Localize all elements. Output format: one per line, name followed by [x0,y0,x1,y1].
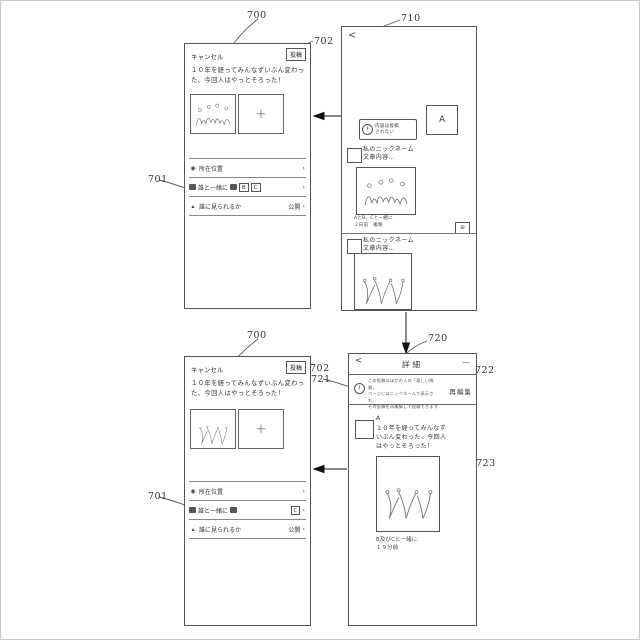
row-with-label: 誰と一緒に [198,183,228,192]
attached-photo[interactable] [190,94,236,134]
post-body-text[interactable]: １０年を経ってみんなずいぶん変わった、今回人はやっとそろった！ [191,66,307,86]
item1-caption: AとB、Cと一緒に ２日前 複製 [354,216,393,230]
notice-divider [349,404,476,405]
ref-721: 721 [311,374,331,385]
patent-figure: 700 702 710 711 701 700 702 701 720 721 … [0,0,640,640]
ref-700-bottom: 700 [247,330,267,341]
attached-photo[interactable] [190,409,236,449]
tag-people-icon [189,184,196,190]
compose-options: ◉ 所在位置 › 誰と一緒に B C › ▴ 誰に見られるか 公開 › [189,158,306,216]
row-location[interactable]: ◉ 所在位置 › [189,158,306,177]
chevron-right-icon: › [302,164,305,172]
item2-photo[interactable] [354,253,412,310]
detail-body-text: １０年を経ってみんなずいぶん変わった、今回人はやっとそろった！ [376,424,452,451]
row-with-whom[interactable]: 誰と一緒に C › [189,500,306,519]
not-posted-notice: ! 内容は投稿 されない [359,119,417,140]
row-with-label: 誰と一緒に [198,506,228,515]
chevron-right-icon: › [302,506,305,514]
row-visibility-label: 誰に見られるか [199,202,241,211]
cancel-button[interactable]: キャンセル [191,364,224,374]
hands-sketch-icon [358,257,408,307]
row-location[interactable]: ◉ 所在位置 › [189,481,306,500]
post-body-text[interactable]: １０年を経ってみんなずいぶん変わった、今回人はやっとそろった！ [191,379,307,399]
item1-checkbox[interactable] [347,148,362,163]
ref-723: 723 [476,458,496,469]
ref-702-top: 702 [314,36,334,47]
post-button[interactable]: 投稿 [286,48,306,61]
ref-720: 720 [428,333,448,344]
chevron-right-icon: › [302,525,305,533]
detail-author: A [376,415,381,423]
avatar-a-box[interactable]: A [426,105,458,135]
people-sketch-icon [192,97,234,131]
friend-badge-c[interactable]: C [291,506,301,515]
back-chevron-icon[interactable]: < [348,30,356,41]
compose-options: ◉ 所在位置 › 誰と一緒に C › ▴ 誰に見られるか 公開 › [189,481,306,539]
detail-notice-text: この投稿はほかの人の「楽しい瞬間」 ページにはニックネームで表示され、 その投稿… [368,378,442,411]
detail-photo[interactable] [376,456,440,532]
ref-722: 722 [475,365,495,376]
row-visibility[interactable]: ▴ 誰に見られるか 公開 › [189,519,306,539]
row-visibility-label: 誰に見られるか [199,525,241,534]
menu-dash-icon[interactable]: — [462,358,470,367]
arrows-and-leaders [1,1,640,640]
chevron-right-icon: › [302,202,305,210]
header-divider [349,374,476,375]
location-pin-icon: ◉ [189,165,197,172]
ref-701-top: 701 [148,174,168,185]
compose-screen-top: キャンセル 投稿 １０年を経ってみんなずいぶん変わった、今回人はやっとそろった！… [184,43,311,309]
friend-badge-c[interactable]: C [251,183,261,192]
row-visibility[interactable]: ▴ 誰に見られるか 公開 › [189,196,306,216]
hands-sketch-icon [192,412,234,446]
list-screen: < ! 内容は投稿 されない A 私のニックネーム 文章内容… AとB、Cと一緒… [341,26,477,311]
ref-700-top: 700 [247,10,267,21]
row-with-whom[interactable]: 誰と一緒に B C › [189,177,306,196]
hands-sketch-icon [380,462,436,526]
item1-photo[interactable] [356,167,416,215]
chevron-right-icon: › [302,183,305,191]
detail-avatar-box[interactable] [355,420,374,439]
mention-icon [230,507,237,513]
tag-people-icon [189,507,196,513]
people-sketch-icon [359,170,413,212]
friend-badge-b[interactable]: B [239,183,249,192]
compose-screen-bottom: キャンセル 投稿 １０年を経ってみんなずいぶん変わった、今回人はやっとそろった！… [184,356,311,626]
detail-screen: < 詳細 — ! この投稿はほかの人の「楽しい瞬間」 ページにはニックネームで表… [348,353,477,626]
item2-checkbox[interactable] [347,239,362,254]
person-icon: ▴ [189,526,197,533]
person-icon: ▴ [189,203,197,210]
item-divider [342,233,476,234]
detail-title: 詳細 [349,359,476,370]
chevron-right-icon: › [302,487,305,495]
post-button[interactable]: 投稿 [286,361,306,374]
item2-text[interactable]: 私のニックネーム 文章内容… [363,237,414,254]
alert-circle-icon: ! [362,124,373,135]
media-row: + [190,409,284,449]
detail-caption: B及びCと一緒に １９分前 [376,536,417,552]
add-photo-button[interactable]: + [238,409,284,449]
mention-icon [230,184,237,190]
ref-702-bottom: 702 [310,363,330,374]
item1-text[interactable]: 私のニックネーム 文章内容… [363,146,414,163]
row-location-label: 所在位置 [199,164,223,173]
location-pin-icon: ◉ [189,488,197,495]
visibility-value: 公開 [288,202,300,211]
notice-text: 内容は投稿 されない [375,124,399,135]
add-photo-button[interactable]: + [238,94,284,134]
ref-701-bottom: 701 [148,491,168,502]
ref-710: 710 [401,13,421,24]
cancel-button[interactable]: キャンセル [191,51,224,61]
row-location-label: 所在位置 [199,487,223,496]
reedit-button[interactable]: 再編集 [450,386,473,396]
visibility-value: 公開 [288,525,300,534]
media-row: + [190,94,284,134]
alert-circle-icon: ! [354,383,365,394]
